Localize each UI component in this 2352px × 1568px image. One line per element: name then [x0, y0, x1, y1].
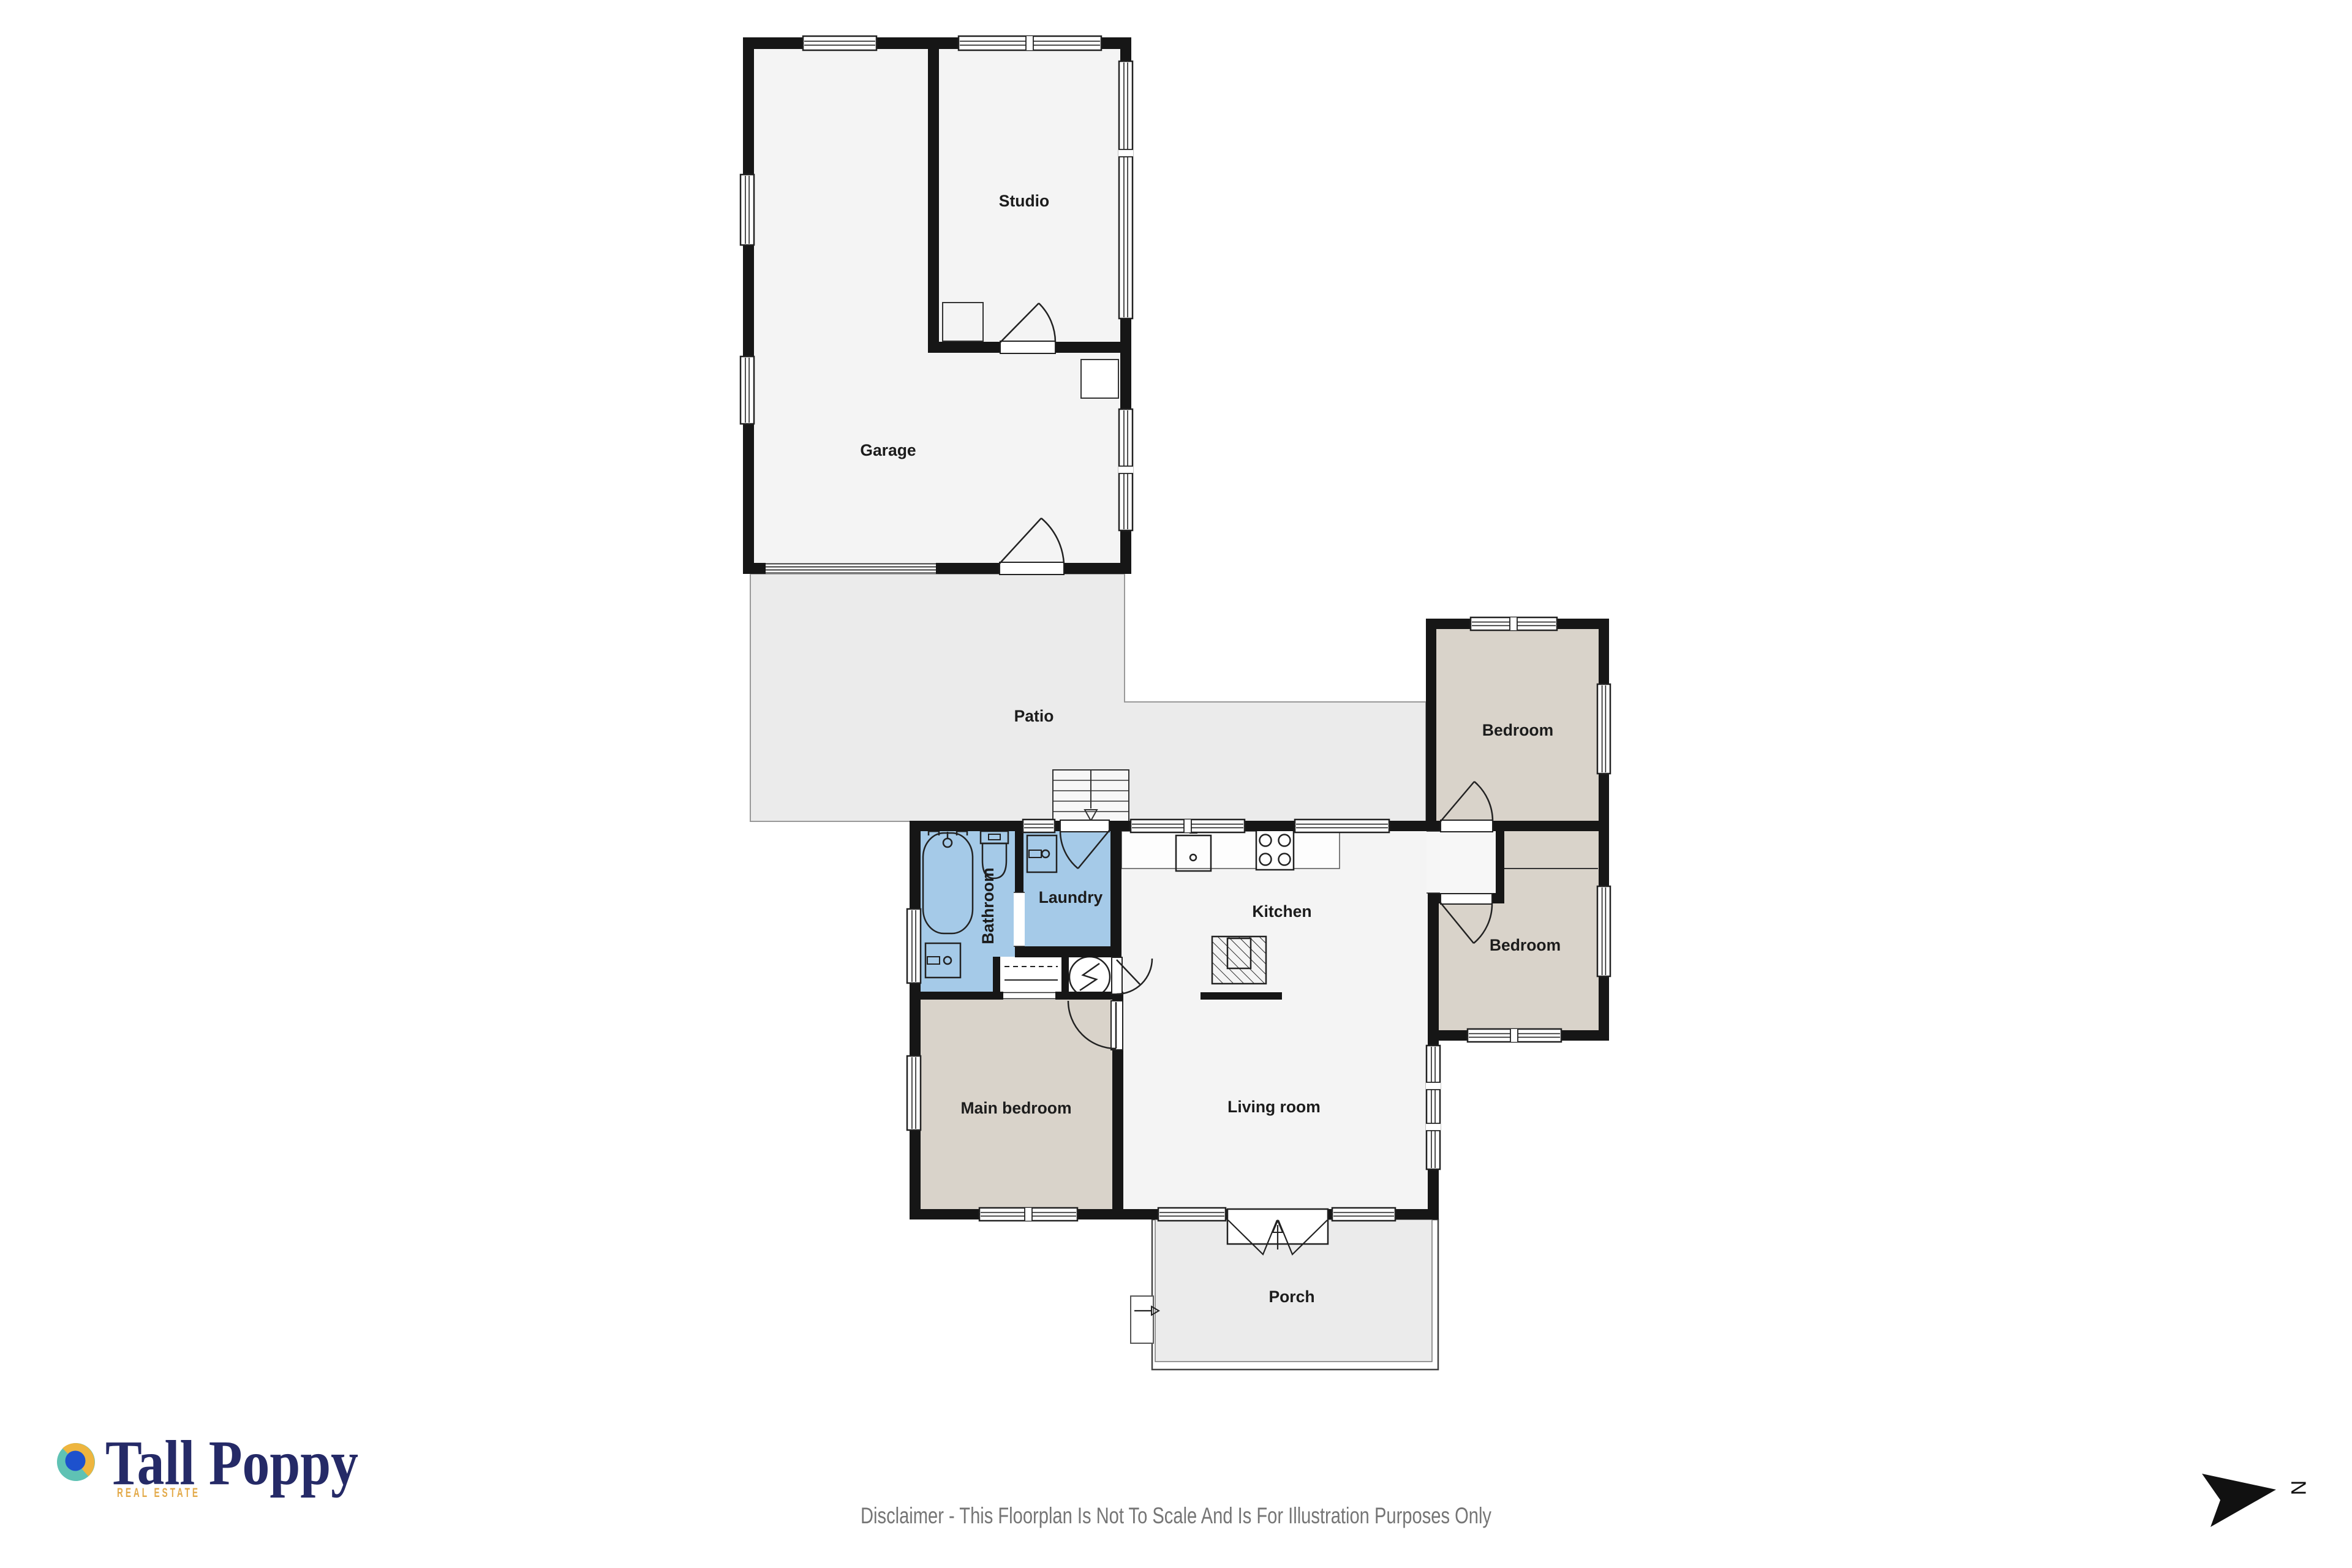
svg-text:Living room: Living room — [1227, 1098, 1321, 1116]
svg-text:Porch: Porch — [1268, 1287, 1314, 1306]
svg-text:Bedroom: Bedroom — [1482, 721, 1553, 739]
svg-text:Disclaimer - This Floorplan Is: Disclaimer - This Floorplan Is Not To Sc… — [861, 1503, 1491, 1528]
svg-text:REAL ESTATE: REAL ESTATE — [117, 1486, 200, 1500]
svg-text:Kitchen: Kitchen — [1252, 902, 1311, 921]
svg-text:Bedroom: Bedroom — [1490, 936, 1561, 954]
svg-text:Laundry: Laundry — [1039, 888, 1103, 907]
svg-text:Garage: Garage — [860, 441, 916, 459]
svg-text:Main bedroom: Main bedroom — [960, 1099, 1071, 1117]
svg-text:Studio: Studio — [999, 192, 1049, 210]
svg-text:N: N — [2286, 1480, 2310, 1496]
svg-text:Patio: Patio — [1014, 707, 1054, 725]
svg-text:Bathroom: Bathroom — [979, 867, 997, 944]
